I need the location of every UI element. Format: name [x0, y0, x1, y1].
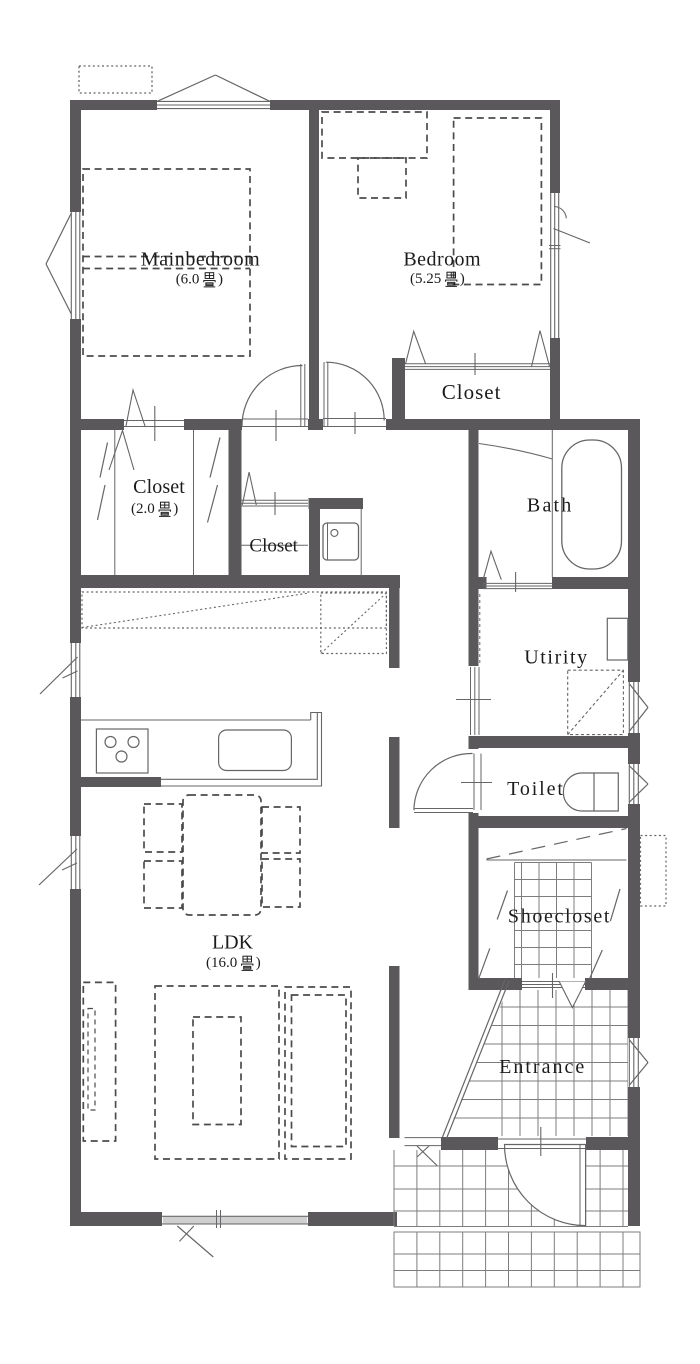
svg-text:): ) — [460, 271, 465, 287]
svg-text:Toilet: Toilet — [507, 778, 565, 800]
svg-text:): ) — [256, 955, 261, 971]
svg-text:): ) — [218, 272, 223, 288]
svg-text:Mainbedroom: Mainbedroom — [141, 249, 260, 271]
svg-text:Closet: Closet — [133, 476, 185, 498]
svg-text:Shoecloset: Shoecloset — [508, 906, 611, 928]
svg-text:Closet: Closet — [249, 536, 298, 557]
svg-text:): ) — [173, 501, 178, 517]
svg-text:(2.0: (2.0 — [131, 501, 155, 517]
svg-text:LDK: LDK — [212, 932, 254, 954]
svg-text:Closet: Closet — [442, 380, 502, 404]
svg-text:Entrance: Entrance — [499, 1056, 586, 1078]
svg-text:Bath: Bath — [527, 495, 574, 517]
svg-text:(5.25: (5.25 — [410, 271, 441, 287]
svg-text:Utirity: Utirity — [524, 646, 589, 668]
svg-text:(6.0: (6.0 — [176, 272, 200, 288]
svg-text:(16.0: (16.0 — [206, 955, 237, 971]
svg-text:Bedroom: Bedroom — [403, 249, 481, 271]
